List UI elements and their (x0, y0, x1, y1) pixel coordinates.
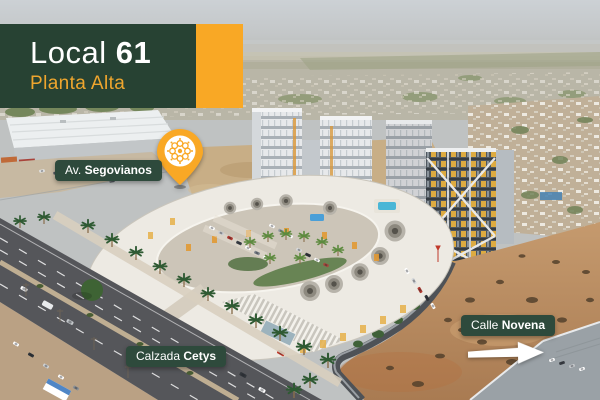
listing-image: Local 61 Planta Alta Av. Segovianos Calz… (0, 0, 600, 400)
rooftop-pool (378, 202, 396, 210)
badge-accent-strip (196, 24, 243, 108)
street-label-segovianos: Av. Segovianos (55, 160, 162, 181)
unit-floor: Planta Alta (30, 73, 196, 95)
map-pin-icon (157, 129, 203, 191)
unit-title: Local 61 (30, 37, 196, 70)
street-label-cetys: Calzada Cetys (126, 346, 226, 367)
unit-badge: Local 61 Planta Alta (0, 24, 196, 108)
tower-5 (496, 150, 514, 244)
street-label-novena: Calle Novena (461, 315, 555, 336)
arrow-right-icon (466, 340, 546, 367)
